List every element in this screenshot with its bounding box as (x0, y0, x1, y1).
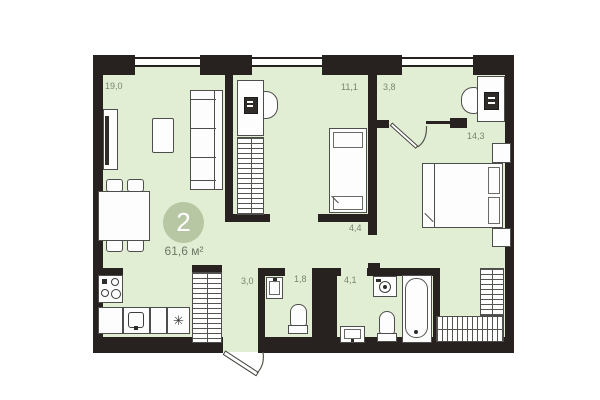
bedroom-wardrobe (480, 268, 504, 316)
blanket-fold (424, 213, 433, 222)
toilet (290, 304, 307, 327)
sofa-backrest (214, 91, 215, 189)
bathtub-drain (414, 330, 418, 334)
toilet-tank (377, 333, 397, 342)
toilet (379, 311, 395, 335)
wall (258, 268, 265, 353)
fridge-cell: ✳ (167, 307, 190, 334)
unit-number-badge: 2 (163, 202, 204, 243)
window (135, 57, 200, 67)
coffee-table (152, 118, 174, 153)
office-chair (461, 87, 478, 114)
floor-plan: 2 61,6 м² ✳ (0, 0, 600, 400)
stove-burner (111, 289, 121, 299)
kitchen-counter (150, 307, 167, 334)
sofa-seat-line (191, 128, 216, 129)
wall (450, 118, 467, 128)
sofa-armrest (191, 180, 216, 181)
single-bed (329, 128, 367, 213)
room-label-wc: 1,8 (294, 275, 307, 284)
bathtub-basin (405, 278, 428, 338)
bedroom-wardrobe (436, 316, 504, 342)
wall (505, 55, 514, 353)
toilet-tank (288, 325, 308, 334)
room-label-closet: 3,8 (383, 83, 396, 92)
monitor-icon (244, 97, 258, 114)
kitchen-sink-unit (123, 307, 150, 334)
fridge-icon: ✳ (173, 313, 184, 329)
nightstand (492, 143, 511, 163)
room-label-bathroom: 4,1 (344, 276, 357, 285)
window (402, 57, 473, 67)
dining-table (98, 191, 150, 241)
sofa-armrest (191, 99, 216, 100)
wardrobe (237, 137, 264, 215)
wall (225, 214, 270, 222)
kitchen-counter (98, 307, 123, 334)
washer-door (383, 285, 387, 289)
stove-burner (111, 278, 119, 286)
tv-icon (105, 116, 109, 165)
window (252, 57, 322, 67)
wall-thin (426, 121, 451, 124)
wall (377, 120, 389, 128)
stove-burner (101, 289, 109, 297)
monitor-icon (484, 92, 499, 110)
pillow (488, 197, 500, 224)
sofa-seat-line (191, 157, 216, 158)
wall (368, 263, 380, 269)
faucet (351, 339, 354, 342)
stove (98, 275, 123, 303)
nightstand (492, 228, 511, 247)
faucet (134, 326, 138, 330)
stove-burner (102, 279, 107, 284)
room-label-corridor: 4,4 (349, 224, 362, 233)
entry-threshold-floor (223, 337, 262, 352)
wall-pier (93, 55, 135, 75)
wall (192, 265, 222, 272)
wall (225, 75, 233, 222)
total-area-label: 61,6 м² (155, 244, 213, 258)
faucet (273, 278, 277, 281)
room-label-hallway: 3,0 (241, 277, 254, 286)
wall (337, 268, 341, 276)
wall-pier (322, 55, 402, 75)
wall (368, 75, 377, 235)
entrance-door (223, 350, 259, 376)
pillow (333, 132, 363, 148)
room-label-living: 19,0 (105, 82, 123, 91)
washing-machine (373, 276, 397, 297)
blanket-edge (434, 164, 435, 227)
room-label-child-bedroom: 11,1 (341, 83, 358, 92)
bathtub (402, 275, 432, 343)
unit-number: 2 (176, 207, 190, 238)
hall-wardrobe (192, 272, 222, 343)
room-label-bedroom: 14,3 (467, 132, 485, 141)
wall-shaft (312, 268, 337, 353)
wash-basin (340, 326, 365, 343)
pillow (488, 167, 500, 194)
double-bed (422, 163, 503, 228)
wash-basin (266, 277, 283, 299)
wall-pier (473, 55, 514, 75)
wall-pier (200, 55, 252, 75)
sofa (190, 90, 223, 190)
